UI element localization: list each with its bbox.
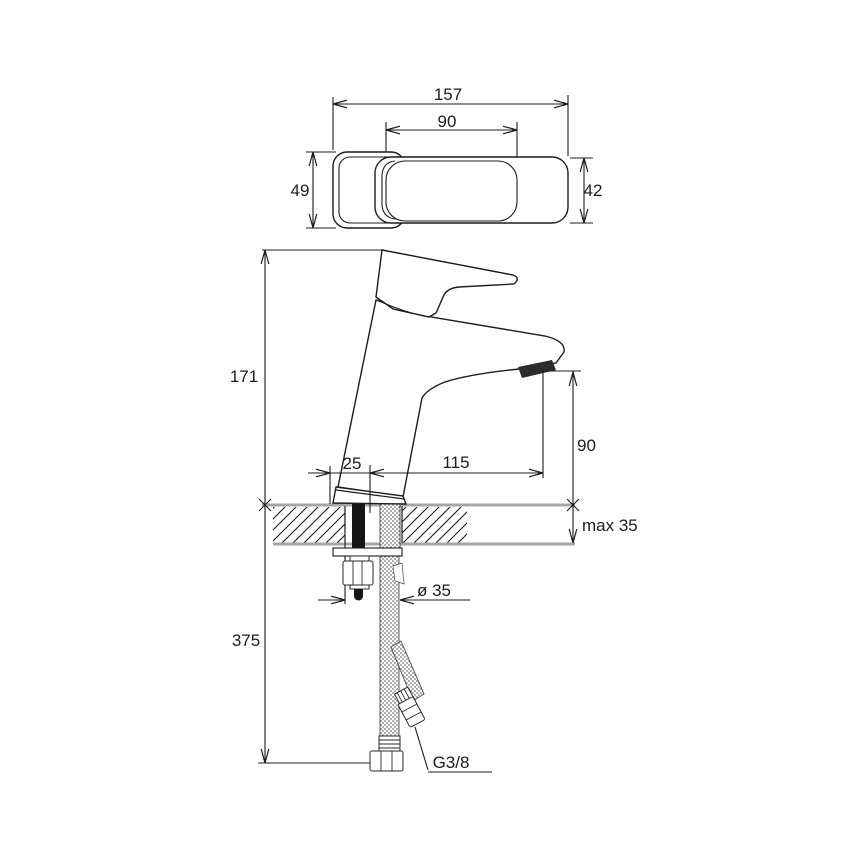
dim-spout-reach: 115: [442, 453, 469, 472]
counter-section: [262, 505, 575, 544]
mounting-stud: [352, 504, 365, 549]
dim-height: 171: [230, 367, 258, 386]
faucet-technical-drawing: 157 90 49 42: [0, 0, 868, 868]
hose-in-counter: [380, 504, 400, 549]
mounting-washer-plate: [333, 548, 402, 556]
dim-deck-thickness: max 35: [582, 516, 638, 535]
dim-body-width: 49: [291, 181, 310, 200]
top-view: 157 90 49 42: [291, 85, 603, 228]
hose-left-collar: [379, 736, 400, 751]
label-thread-size: G3/8: [433, 753, 470, 772]
dim-lever-length: 90: [438, 112, 457, 131]
hose-left-nut: [370, 751, 403, 771]
dim-total-length: 157: [434, 85, 462, 104]
dim-hose-length: 375: [232, 631, 260, 650]
mounting-nut: [343, 556, 373, 601]
dim-hole-diameter: ø 35: [417, 581, 451, 600]
front-view: 171 375 25 115 90 max 35 ø 35 G3/8: [230, 250, 638, 772]
dim-base-offset: 25: [343, 454, 362, 473]
dim-spout-height: 90: [577, 436, 596, 455]
lever-top-face: [386, 161, 517, 221]
drawing-canvas: 157 90 49 42: [0, 0, 868, 868]
dim-lever-width: 42: [584, 181, 603, 200]
faucet-lever: [376, 250, 517, 317]
